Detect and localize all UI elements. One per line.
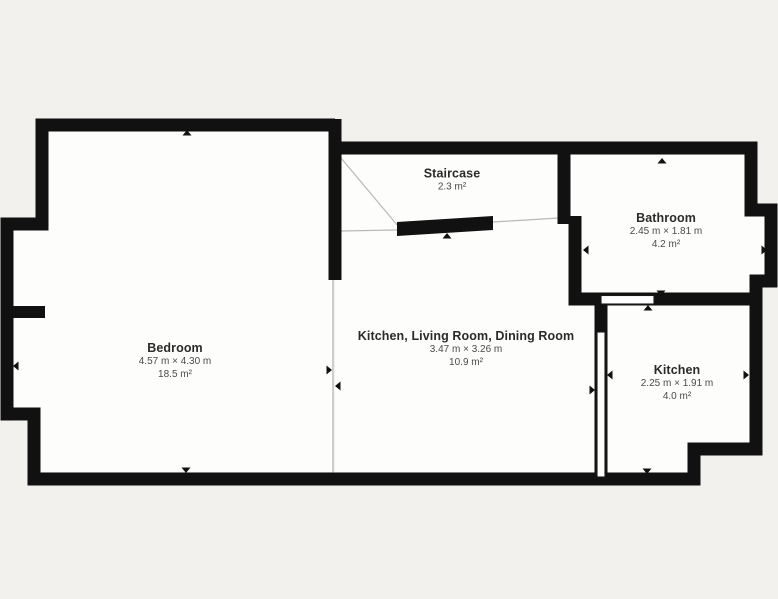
bathroom-door xyxy=(601,296,654,305)
wall-stub xyxy=(6,306,45,318)
floor-plan-page: Bedroom 4.57 m × 4.30 m 18.5 m² Staircas… xyxy=(0,0,778,599)
kitchen-sliding-door xyxy=(597,332,605,477)
floor-plan-drawing xyxy=(0,0,778,599)
kitchen-floor-lower xyxy=(601,299,694,474)
bedroom-floor xyxy=(13,131,332,472)
bathroom-floor xyxy=(564,155,757,299)
